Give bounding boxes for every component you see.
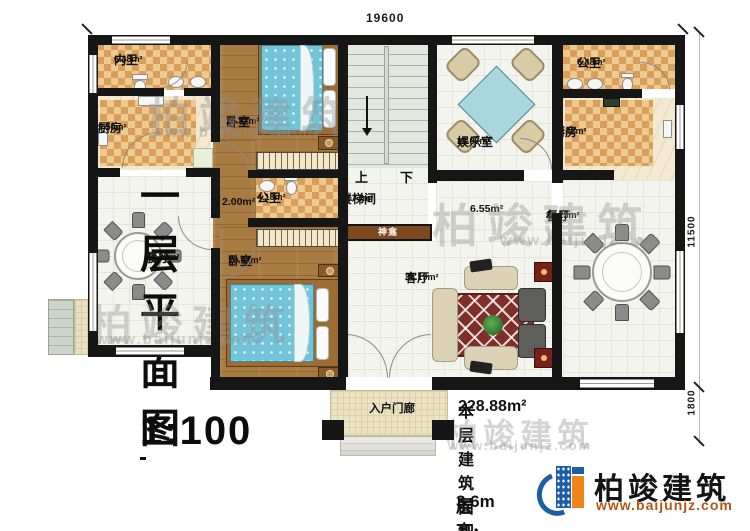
wall-exterior-top [88, 35, 685, 45]
tv-cabinet [534, 262, 554, 282]
porch-steps [340, 436, 436, 456]
window [112, 36, 170, 44]
wall-interior [211, 168, 220, 218]
window [452, 36, 534, 44]
wall-interior [88, 168, 120, 177]
bed-top-pillow [323, 48, 336, 86]
area-label-corridor-mid: 6.55m² [470, 203, 503, 215]
bed-bottom-pillow [316, 288, 329, 322]
shrine-band: 神龛 [344, 224, 432, 241]
window [116, 347, 184, 355]
sink [190, 76, 206, 88]
wall-entertainment-left [428, 35, 437, 183]
dimension-tick [81, 23, 92, 34]
logo-building-icon [572, 467, 584, 474]
plant [483, 315, 503, 335]
wardrobe-bedroom-top [256, 152, 340, 170]
side-steps [48, 299, 74, 355]
wall-interior [184, 88, 212, 96]
fridge [193, 148, 213, 168]
floor-plan-canvas: 上 下 神龛 [0, 0, 750, 531]
dimension-top: 19600 [366, 11, 404, 25]
chair [574, 266, 591, 280]
toilet [286, 181, 297, 195]
porch-post [322, 420, 344, 440]
logo-url: www.baijunjz.com [596, 497, 733, 513]
wall-interior [211, 35, 220, 142]
logo-building-icon [556, 466, 571, 508]
cooktop [663, 120, 672, 138]
plan-scale: 1:100 [140, 409, 252, 454]
window [676, 251, 684, 333]
dimension-porch: 1800 [687, 383, 698, 423]
wall-bath-right-bottom [557, 89, 642, 98]
wall-kitchen-right-bottom [552, 170, 614, 180]
wall-entertainment-bottom [428, 170, 524, 181]
window [676, 105, 684, 149]
stair-up-label: 上 [355, 167, 368, 186]
dining-table-right-ring [602, 252, 642, 292]
wall-interior [211, 248, 220, 377]
porch-post [432, 420, 454, 440]
wall-exterior-right [675, 35, 685, 390]
dimension-right: 11500 [687, 208, 698, 256]
stair-arrow-head [362, 128, 372, 141]
room-label-porch: 入户门廊 [352, 400, 432, 416]
wall-interior [248, 218, 345, 227]
sofa-left [432, 288, 458, 362]
kitchen-sink [138, 96, 164, 106]
window [580, 379, 654, 388]
chair [615, 224, 629, 241]
window [89, 253, 97, 331]
dimension-tick [677, 23, 688, 34]
stair-stringer [384, 46, 389, 164]
wall-interior [96, 88, 164, 96]
bed-bottom-pillow [316, 326, 329, 360]
stair-direction-arrow [366, 96, 368, 130]
dimension-line-right [699, 32, 700, 444]
wall-exterior-bottom [210, 377, 346, 390]
plan-title-row: 一层平面图 1:100 [140, 454, 146, 460]
wardrobe-bedroom-bottom [256, 229, 340, 247]
tv-cabinet [534, 348, 554, 368]
nightstand [318, 136, 340, 150]
chair [615, 304, 629, 321]
wall-stair-left [338, 35, 348, 377]
area-label-corridor-small: 2.00m² [222, 196, 255, 208]
stove [603, 98, 620, 107]
logo-building-icon [572, 476, 584, 508]
window [89, 55, 97, 93]
armchair [518, 288, 546, 322]
wall-entertainment-right [552, 35, 563, 183]
wall-living-right [552, 213, 562, 377]
stair-down-label: 下 [400, 167, 413, 186]
wall-interior [248, 170, 345, 178]
bed-top-pillow [323, 90, 336, 128]
chair [654, 266, 671, 280]
